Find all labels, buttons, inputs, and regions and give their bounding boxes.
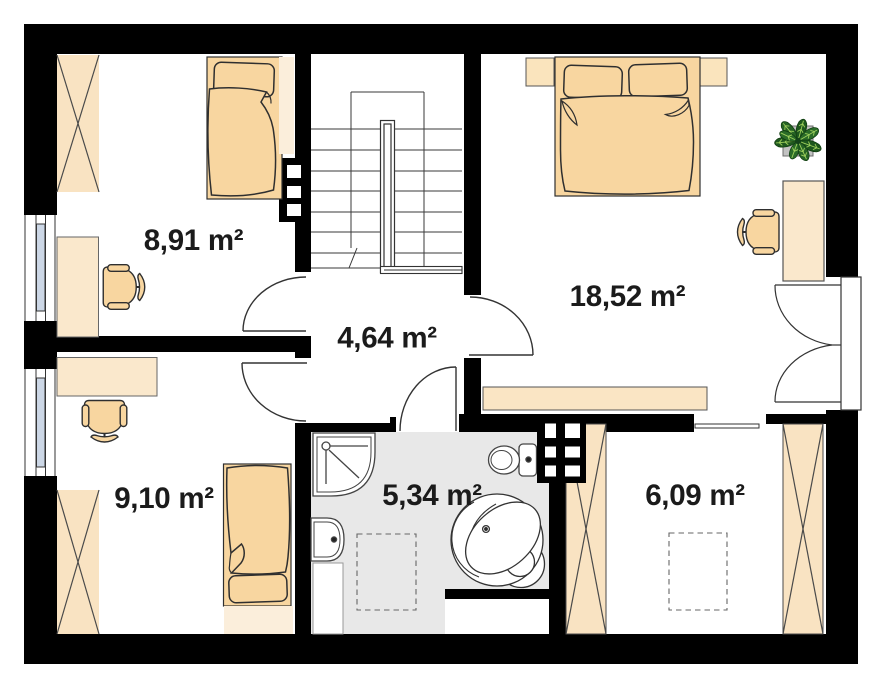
svg-text:9,10 m²: 9,10 m²: [114, 482, 214, 515]
svg-text:8,91 m²: 8,91 m²: [144, 224, 244, 257]
svg-text:5,34 m²: 5,34 m²: [382, 479, 482, 512]
svg-text:6,09 m²: 6,09 m²: [645, 479, 745, 512]
svg-text:4,64 m²: 4,64 m²: [337, 322, 437, 355]
svg-text:18,52 m²: 18,52 m²: [570, 280, 686, 313]
